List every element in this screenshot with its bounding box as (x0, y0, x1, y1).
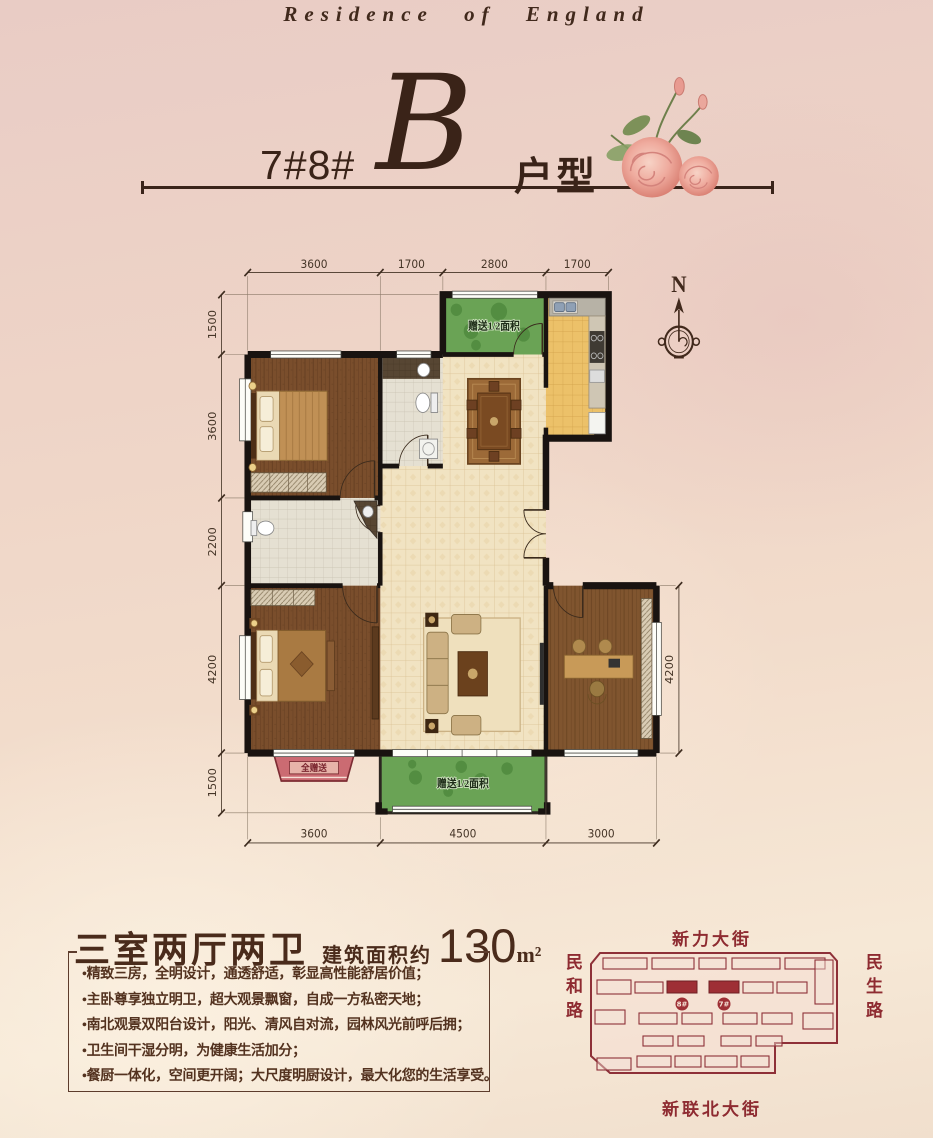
page: Residence of England 7#8# B 户型 (0, 0, 933, 1138)
compass-north-label: N (671, 271, 686, 297)
dim-left-5: 1500 (206, 768, 218, 797)
feature-box-border-right (474, 951, 489, 953)
dim-right-1: 4200 (664, 655, 676, 684)
dim-top-1: 3600 (300, 258, 327, 272)
dim-top-4: 1700 (564, 258, 591, 272)
block-numbers: 7#8# (260, 142, 355, 189)
compass-north-icon: N (658, 271, 699, 357)
feature-box-border-left (69, 951, 77, 953)
feature-item: •南北观景双阳台设计，阳光、清风自对流，园林风光前呼后拥； (82, 1013, 479, 1039)
building-8-label: 8# (677, 1001, 688, 1009)
feature-list: •精致三房，全明设计，通透舒适，彰显高性能舒居价值； •主卧尊享独立明卫，超大观… (69, 962, 489, 1090)
dim-left-2: 3600 (206, 412, 218, 441)
dim-bottom-3: 3000 (588, 827, 615, 841)
bay-gift-label: 全赠送 (300, 761, 327, 772)
dim-top-2: 1700 (398, 258, 425, 272)
dim-bottom-1: 3600 (300, 827, 327, 841)
area-unit: m² (516, 942, 541, 968)
site-boundary (591, 953, 837, 1073)
dim-bottom-2: 4500 (449, 827, 476, 841)
floor-plan: 全赠送 (170, 246, 710, 866)
south-balcony-gift-label: 赠送1/2面积 (437, 777, 490, 791)
dim-left-3: 2200 (206, 527, 218, 556)
feature-item: •餐厨一体化，空间更开阔；大尺度明厨设计，最大化您的生活享受。 (82, 1064, 479, 1090)
tagline: Residence of England (0, 2, 933, 27)
feature-box: •精致三房，全明设计，通透舒适，彰显高性能舒居价值； •主卧尊享独立明卫，超大观… (68, 951, 490, 1092)
feature-item: •卫生间干湿分明，为健康生活加分； (82, 1039, 479, 1065)
building-7-label: 7# (719, 1001, 730, 1009)
feature-item: •精致三房，全明设计，通透舒适，彰显高性能舒居价值； (82, 962, 479, 988)
gift-bay-window: 全赠送 (274, 753, 355, 781)
site-map: 8# 7# (553, 918, 893, 1118)
feature-item: •主卧尊享独立明卫，超大观景飘窗，自成一方私密天地； (82, 988, 479, 1014)
dim-top-3: 2800 (481, 258, 508, 272)
rose-decoration-icon (576, 74, 732, 202)
dim-left-1: 1500 (206, 310, 218, 339)
dim-left-4: 4200 (206, 655, 218, 684)
north-balcony-gift-label: 赠送1/2面积 (468, 319, 521, 333)
unit-letter: B (376, 58, 473, 190)
